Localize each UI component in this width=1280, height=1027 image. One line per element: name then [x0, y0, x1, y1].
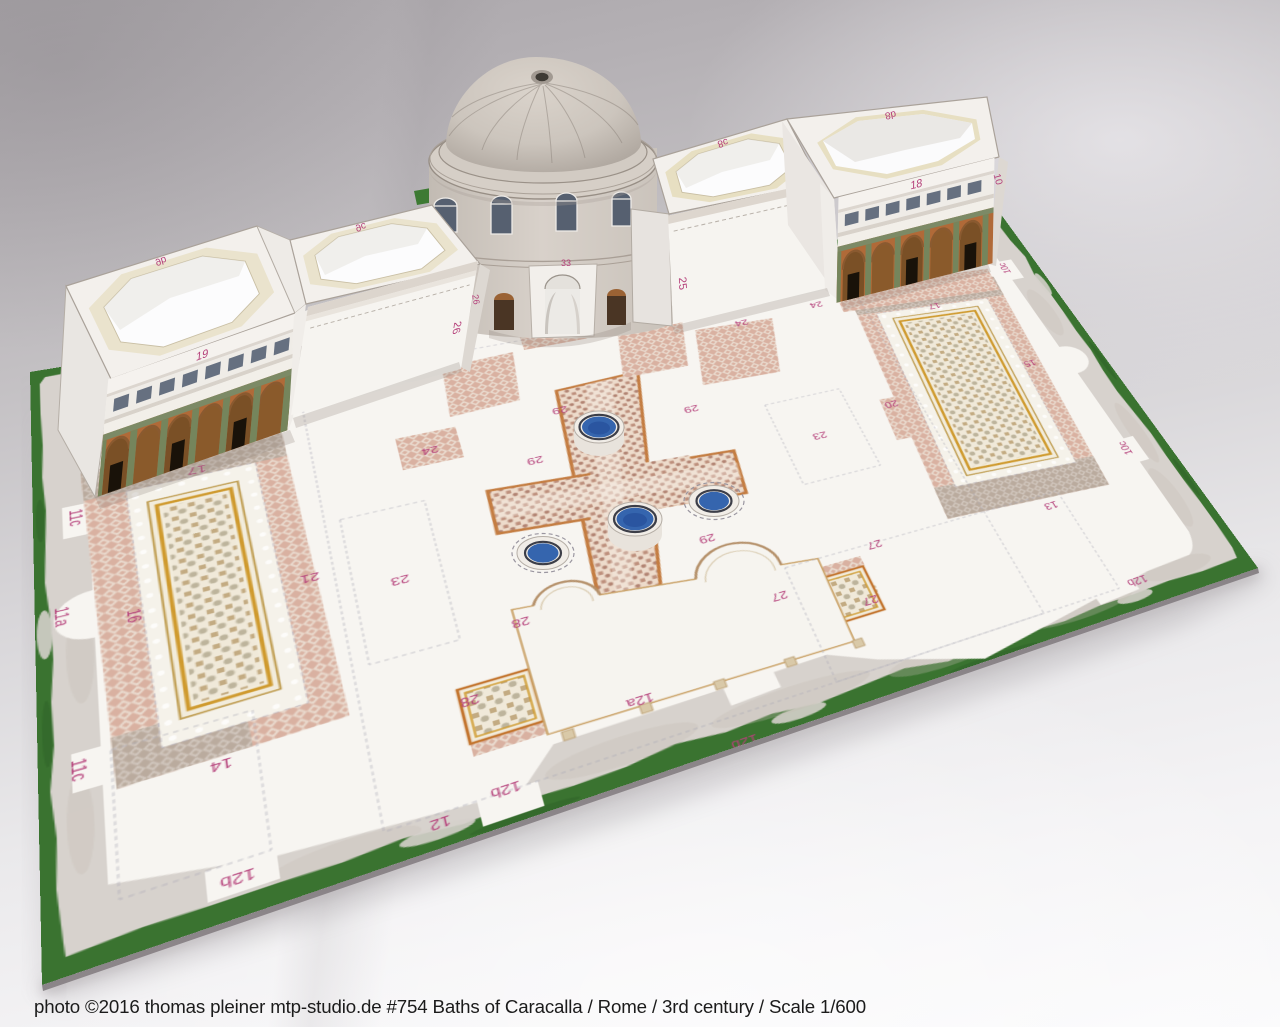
- svg-text:25: 25: [676, 276, 688, 291]
- svg-text:26: 26: [470, 294, 482, 306]
- svg-text:33: 33: [561, 258, 571, 268]
